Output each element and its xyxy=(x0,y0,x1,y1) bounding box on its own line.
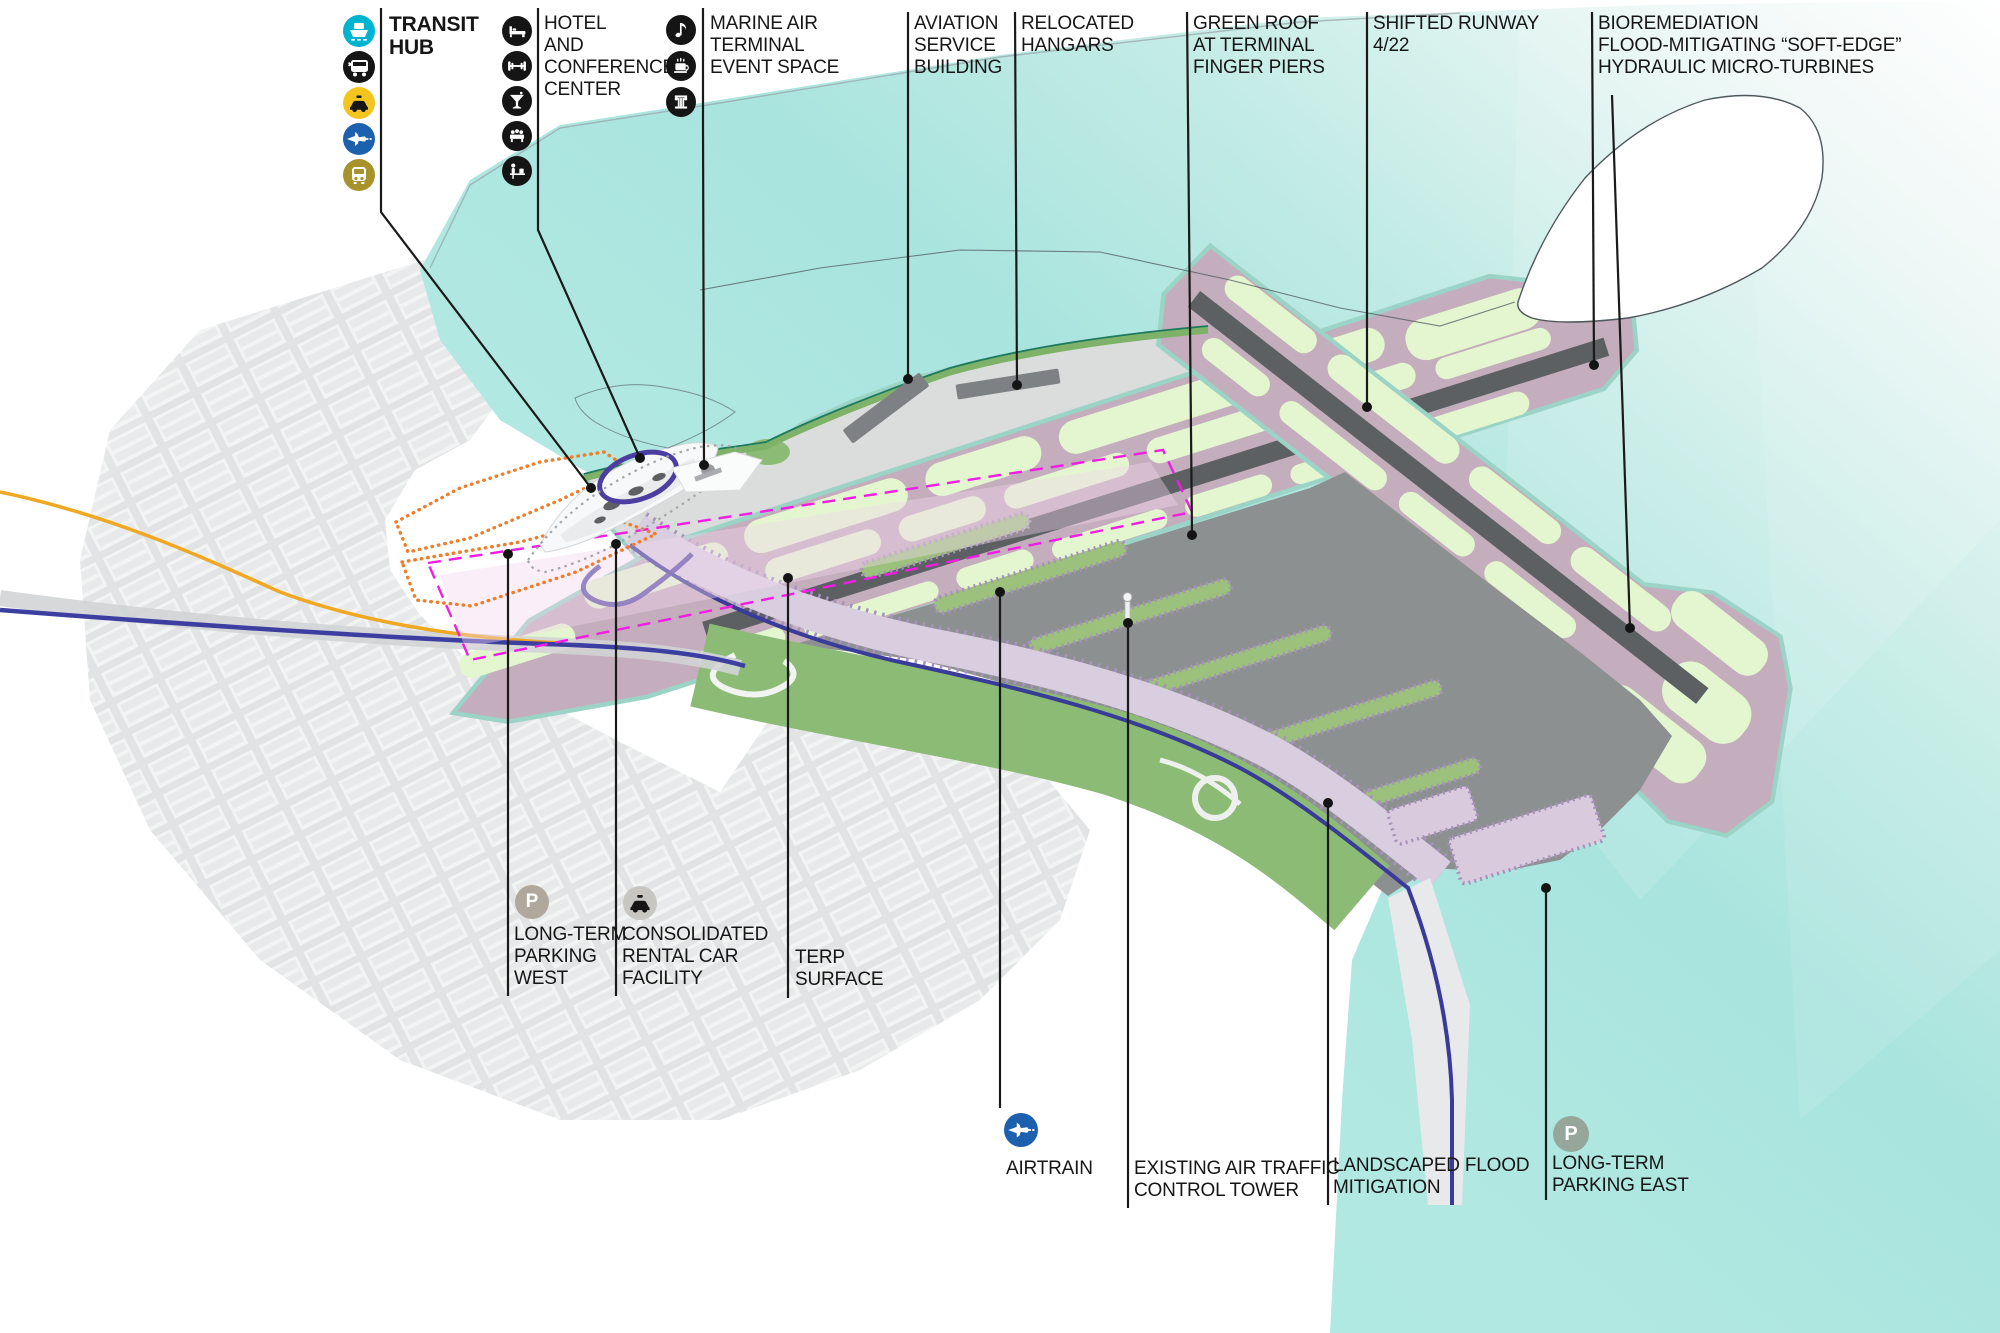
taxi-icon xyxy=(343,87,375,119)
banquet-icon xyxy=(502,121,532,151)
parking-letter: P xyxy=(526,891,539,913)
callout-control-tower: EXISTING AIR TRAFFIC CONTROL TOWER xyxy=(1134,1158,1340,1202)
gym-icon xyxy=(502,51,532,81)
legend-transit-hub-title: TRANSIT HUB xyxy=(389,13,479,59)
airtrain-icon xyxy=(343,123,375,155)
bar-icon xyxy=(502,86,532,116)
museum-icon xyxy=(666,87,696,117)
ferry-icon xyxy=(343,15,375,47)
callout-consolidated-rental-car: CONSOLIDATED RENTAL CAR FACILITY xyxy=(622,924,768,990)
parking-letter: P xyxy=(1564,1123,1577,1146)
callout-airtrain: AIRTRAIN xyxy=(1006,1158,1093,1180)
callout-long-term-parking-west: LONG-TERM PARKING WEST xyxy=(514,924,626,990)
callout-bioremediation: BIOREMEDIATION FLOOD-MITIGATING “SOFT-ED… xyxy=(1598,13,1901,79)
callout-aviation-service-building: AVIATION SERVICE BUILDING xyxy=(914,13,1002,79)
bed-icon xyxy=(502,16,532,46)
callout-long-term-parking-east: LONG-TERM PARKING EAST xyxy=(1552,1153,1689,1197)
callout-relocated-hangars: RELOCATED HANGARS xyxy=(1021,13,1134,57)
workstation-icon xyxy=(502,156,532,186)
callout-landscaped-flood-mitigation: LANDSCAPED FLOOD MITIGATION xyxy=(1333,1155,1529,1199)
rental-car-icon xyxy=(623,886,657,920)
airport-master-plan-diagram: TRANSIT HUB HOTEL AND CONFERENCE CENTER … xyxy=(0,0,2000,1333)
express-bus-icon xyxy=(343,51,375,83)
master-plan-map xyxy=(0,0,2000,1333)
callout-shifted-runway: SHIFTED RUNWAY 4/22 xyxy=(1373,13,1539,57)
airtrain-icon xyxy=(1004,1113,1038,1147)
parking-icon: P xyxy=(1553,1116,1589,1152)
legend-hotel-label: HOTEL AND CONFERENCE CENTER xyxy=(544,13,675,101)
callout-green-roof-finger-piers: GREEN ROOF AT TERMINAL FINGER PIERS xyxy=(1193,13,1325,79)
subway-icon xyxy=(343,159,375,191)
cafe-icon xyxy=(666,51,696,81)
parking-icon: P xyxy=(515,885,549,919)
music-icon xyxy=(666,15,696,45)
legend-marine-air-label: MARINE AIR TERMINAL EVENT SPACE xyxy=(710,13,839,79)
callout-terp-surface: TERP SURFACE xyxy=(795,947,883,991)
